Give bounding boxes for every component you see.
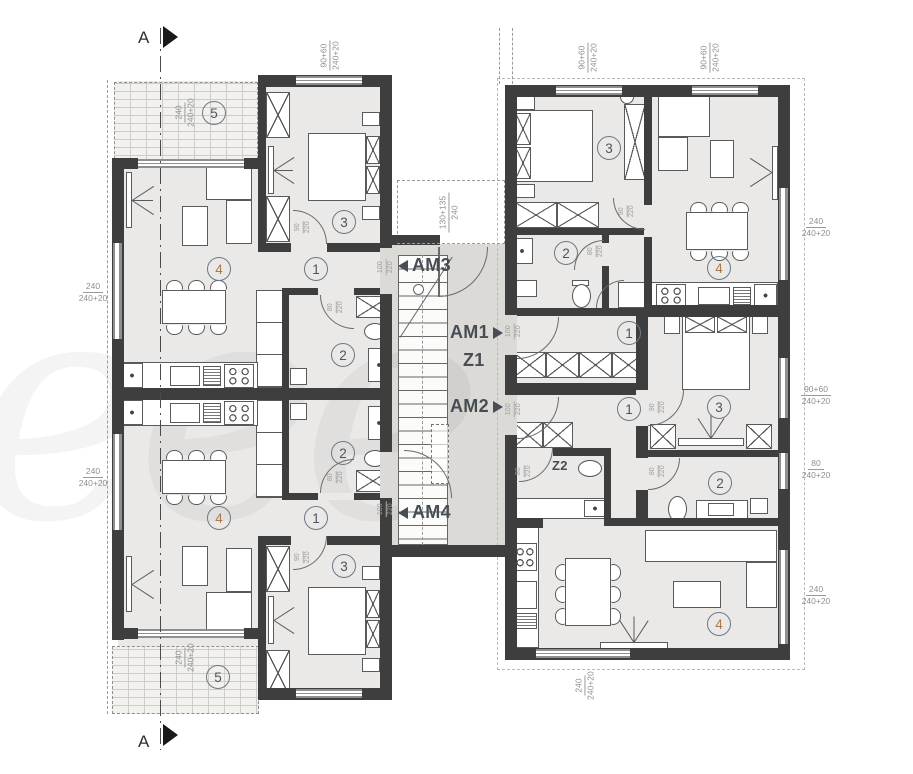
window — [779, 188, 788, 280]
wardrobe — [746, 424, 772, 449]
dim-window: 90+60240+20 — [576, 35, 599, 81]
pillow — [685, 316, 715, 333]
fridge — [121, 400, 143, 425]
window — [779, 550, 788, 644]
section-label-bottom: A — [138, 732, 149, 752]
section-arrow-icon — [163, 724, 178, 746]
sofa — [658, 93, 710, 137]
dim-window: 240240+20 — [573, 663, 596, 709]
dim-window: 240240+20 — [70, 281, 116, 304]
bathroom-sink — [290, 368, 307, 385]
stair-start-circle — [413, 284, 424, 295]
dim-balcony: 240240+20 — [173, 635, 196, 681]
upper-projection-line-1 — [499, 28, 500, 84]
dim-stair-opening: 130+135240 — [437, 190, 460, 236]
room-number-hall: 1 — [617, 397, 641, 421]
wall — [604, 518, 790, 526]
wall — [644, 97, 652, 205]
door-size: 80220 — [327, 294, 346, 320]
wall — [282, 398, 289, 493]
room-number-hall: 1 — [617, 321, 641, 345]
door-size: 80220 — [649, 458, 668, 484]
dish-rack — [203, 403, 221, 423]
wall — [517, 518, 543, 528]
nightstand — [664, 316, 680, 334]
nightstand — [362, 566, 380, 580]
wardrobe — [557, 202, 599, 228]
chair — [188, 450, 205, 460]
wardrobe — [266, 546, 290, 592]
dim-window: 90+60240+20 — [698, 35, 721, 81]
fridge — [584, 500, 606, 517]
section-line — [160, 28, 161, 750]
wall — [505, 85, 517, 660]
pillow — [717, 316, 747, 333]
label-am4: AM4 — [398, 502, 451, 523]
tv-line — [274, 170, 293, 171]
dim-window: 240240+20 — [793, 584, 839, 607]
dim-window: 240240+20 — [70, 466, 116, 489]
wall — [392, 545, 517, 557]
pillow — [366, 136, 380, 164]
pillow — [366, 166, 380, 194]
window — [692, 86, 758, 95]
wardrobe — [546, 352, 579, 378]
wall — [505, 228, 644, 235]
kitchen-tall-units — [256, 400, 284, 498]
chair — [210, 280, 227, 290]
label-am1: AM1 — [450, 322, 503, 343]
room-number-bathroom: 2 — [554, 241, 578, 265]
door-size: 100220 — [377, 254, 396, 280]
nightstand — [362, 658, 380, 672]
chair — [555, 564, 565, 581]
wall — [553, 448, 606, 456]
wall — [636, 426, 648, 458]
sofa — [206, 592, 252, 630]
door-size: 90220 — [618, 198, 637, 224]
wardrobe — [266, 196, 290, 242]
wall — [644, 305, 790, 317]
wall — [124, 158, 138, 169]
window — [536, 649, 630, 658]
toilet — [572, 284, 591, 308]
label-am2: AM2 — [450, 396, 503, 417]
door-size: 100220 — [377, 496, 396, 522]
section-label-top: A — [138, 28, 149, 48]
room-number-bedroom: 3 — [332, 554, 356, 578]
section-arrow-icon — [163, 26, 178, 48]
dining-table — [686, 212, 748, 250]
dining-table — [565, 558, 611, 626]
window — [779, 358, 788, 418]
chair — [188, 280, 205, 290]
pillow — [366, 620, 380, 648]
wall — [644, 237, 652, 308]
nightstand — [362, 206, 380, 220]
room-number-bathroom: 2 — [708, 471, 732, 495]
dim-window: 240240+20 — [793, 216, 839, 239]
kitchen-sink — [698, 287, 730, 305]
room-number-hall: 1 — [304, 257, 328, 281]
coffee-table — [710, 140, 734, 178]
closet — [624, 104, 646, 180]
wall — [517, 308, 644, 316]
tv-line — [132, 200, 153, 201]
door-size: 100220 — [505, 396, 524, 422]
nightstand — [362, 112, 380, 126]
wall — [648, 450, 790, 457]
chair — [711, 202, 728, 212]
room-number-bathroom: 2 — [331, 441, 355, 465]
pillow — [515, 113, 531, 145]
sofa-chaise — [226, 548, 252, 592]
wall — [258, 545, 266, 700]
left-overhang-line — [107, 80, 108, 714]
floor-plan-canvas: eee — [0, 0, 913, 774]
room-number-bathroom: 2 — [331, 343, 355, 367]
dish-rack — [203, 366, 221, 386]
wall — [604, 448, 611, 525]
door-size: 90220 — [294, 214, 313, 240]
window — [556, 86, 622, 95]
wall — [244, 628, 260, 639]
arrow-left-icon — [398, 260, 408, 272]
door-size: 80220 — [515, 458, 534, 484]
wardrobe — [266, 92, 290, 138]
chair — [166, 450, 183, 460]
wardrobe — [515, 202, 557, 228]
bed — [308, 587, 366, 655]
door-size: 100220 — [505, 318, 524, 344]
dish-rack — [733, 287, 751, 305]
stove — [656, 284, 686, 307]
chair — [555, 608, 565, 625]
kitchen-sink — [170, 403, 200, 423]
sofa — [645, 530, 777, 562]
party-wall — [517, 383, 636, 395]
label-z1: Z1 — [463, 350, 485, 371]
dim-balcony: 240240+20 — [173, 90, 196, 136]
dim-window: 90+60240+20 — [318, 33, 341, 79]
arrow-right-icon — [493, 401, 503, 413]
dim-window: 80240+20 — [793, 458, 839, 481]
window — [296, 689, 362, 698]
room-number-hall: 1 — [304, 506, 328, 530]
dim-window: 90+60240+20 — [793, 384, 839, 407]
wall — [282, 295, 289, 390]
room-number-living: 4 — [207, 506, 231, 530]
kitchen-sink — [170, 366, 200, 386]
room-number-bedroom: 3 — [332, 210, 356, 234]
room-number-living: 4 — [707, 612, 731, 636]
door-size: 80220 — [327, 464, 346, 490]
bathroom-sink — [708, 503, 734, 516]
arrow-left-icon — [398, 507, 408, 519]
kitchen-tall-units — [256, 290, 284, 388]
stair-opening-line — [397, 243, 505, 244]
coffee-table — [673, 581, 721, 608]
bathroom-sink — [290, 403, 307, 420]
door-size: 90220 — [649, 394, 668, 420]
coffee-table — [182, 546, 208, 586]
fridge — [754, 284, 777, 307]
entry-door-gap-am4 — [380, 452, 392, 498]
door-gap — [318, 493, 354, 500]
dining-table — [162, 460, 226, 494]
tv-cabinet — [678, 438, 744, 446]
label-am3: AM3 — [398, 255, 451, 276]
room-number-living: 4 — [207, 257, 231, 281]
door-gap — [291, 243, 327, 252]
pillow — [515, 147, 531, 179]
sink-stand — [750, 498, 768, 514]
wall — [258, 87, 266, 245]
sofa-corner — [746, 562, 777, 608]
wall — [124, 628, 138, 639]
dining-table — [162, 290, 226, 324]
room-number-balcony: 5 — [202, 101, 226, 125]
sofa-chaise — [226, 200, 252, 244]
room-number-bedroom: 3 — [707, 395, 731, 419]
chair — [555, 586, 565, 603]
door-size: 90220 — [294, 544, 313, 570]
arrow-right-icon — [493, 327, 503, 339]
room-number-bedroom: 3 — [597, 136, 621, 160]
coffee-table — [182, 206, 208, 246]
balcony-sliding-door — [138, 159, 244, 168]
stove — [224, 401, 254, 425]
nightstand — [752, 316, 768, 334]
wardrobe — [650, 424, 676, 449]
room-number-balcony: 5 — [206, 665, 230, 689]
window — [779, 453, 788, 489]
chair — [166, 280, 183, 290]
party-wall — [112, 388, 392, 400]
toilet-z2 — [578, 460, 602, 477]
chair — [210, 450, 227, 460]
pillow — [366, 590, 380, 618]
label-z2: Z2 — [552, 458, 568, 473]
door-size: 80220 — [587, 238, 606, 264]
stove — [224, 364, 254, 388]
chair — [690, 202, 707, 212]
sofa-chaise — [658, 137, 688, 171]
chair — [732, 202, 749, 212]
upper-projection-line-2 — [512, 28, 513, 84]
fridge — [121, 363, 143, 388]
wardrobe — [579, 352, 612, 378]
wardrobe — [543, 422, 573, 448]
room-number-living: 4 — [707, 256, 731, 280]
bed — [308, 133, 366, 201]
